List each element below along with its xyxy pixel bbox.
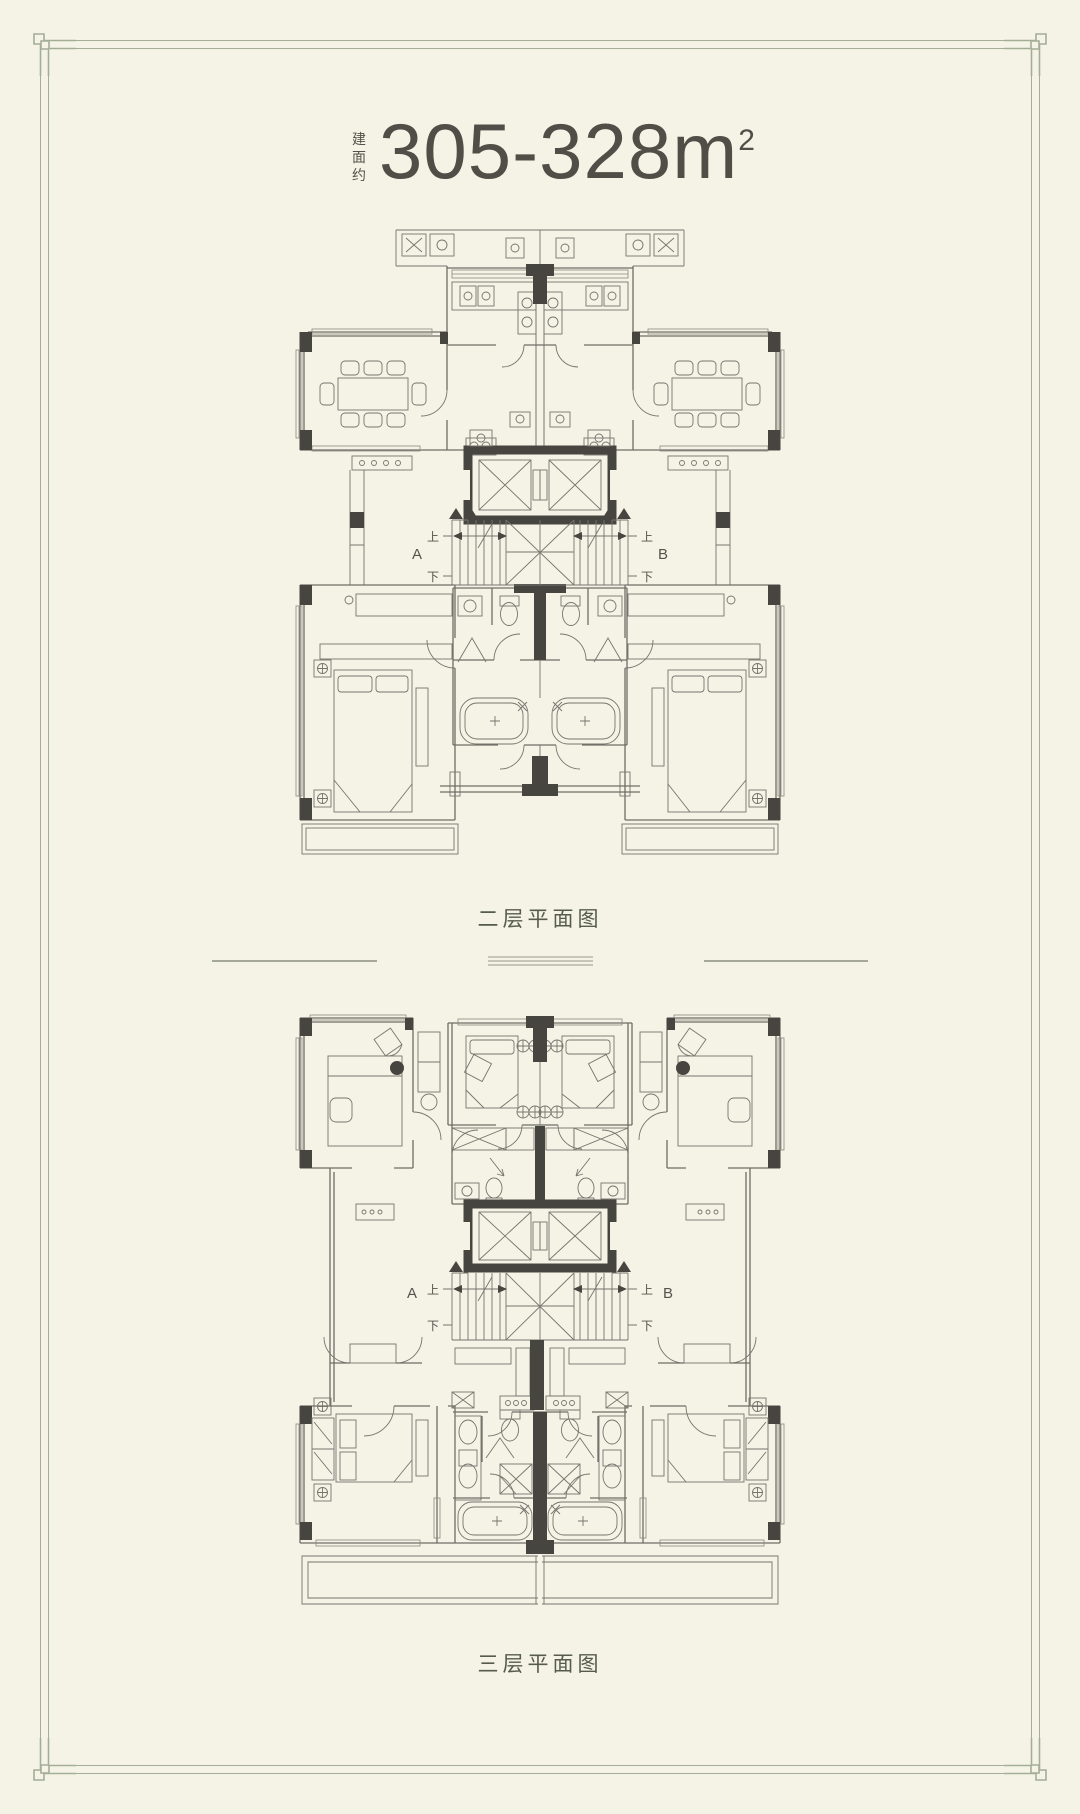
unit-b-label: B	[658, 546, 668, 563]
second-floor-caption: 二层平面图	[0, 903, 1080, 933]
stair-up-label: 上	[641, 1283, 653, 1297]
unit-a-label: A	[407, 1285, 417, 1302]
third-floor-caption: 三层平面图	[0, 1648, 1080, 1678]
stair-up-label: 上	[427, 530, 439, 544]
stair-down-label: 下	[641, 1319, 653, 1333]
third-floor-plan: 上 上 下 下 A B	[296, 1015, 784, 1604]
floorplan-poster: { "colors": { "background": "#f5f3e6", "…	[0, 0, 1080, 1814]
unit-a-label: A	[412, 546, 422, 563]
section-divider	[212, 952, 868, 970]
stair-down-label: 下	[641, 570, 653, 584]
stair-up-label: 上	[427, 1283, 439, 1297]
unit-b-label: B	[663, 1285, 673, 1302]
stair-up-label: 上	[641, 530, 653, 544]
stair-down-label: 下	[427, 1319, 439, 1333]
second-floor-plan: 上 上 下 下 A B	[296, 230, 784, 854]
stair-down-label: 下	[427, 570, 439, 584]
